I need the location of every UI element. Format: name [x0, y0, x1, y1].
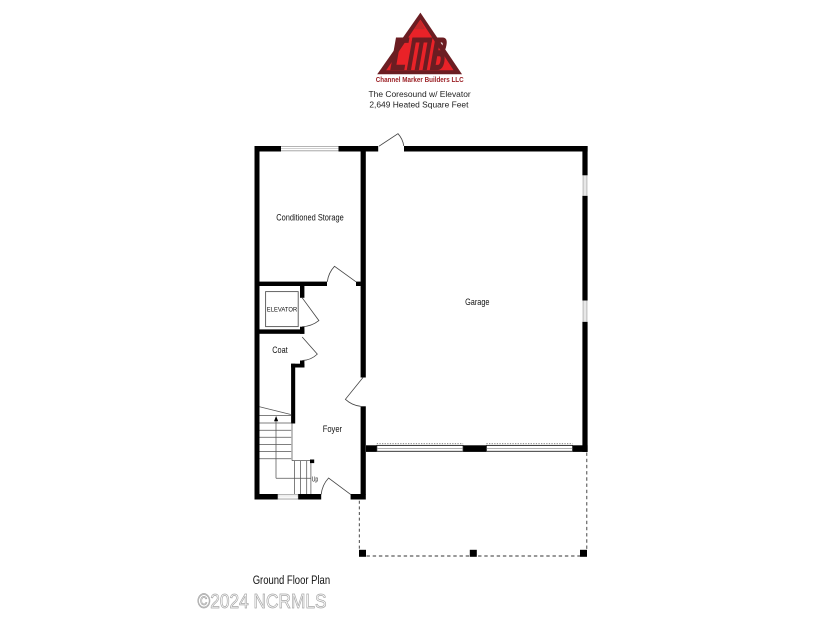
svg-text:Coat: Coat: [272, 345, 288, 355]
svg-text:Garage: Garage: [465, 297, 489, 308]
svg-text:Conditioned Storage: Conditioned Storage: [276, 213, 344, 223]
svg-text:©2024 NCRMLS: ©2024 NCRMLS: [198, 590, 327, 613]
svg-text:Channel Marker Builders LLC: Channel Marker Builders LLC: [376, 75, 464, 84]
svg-text:Ground Floor Plan: Ground Floor Plan: [253, 573, 330, 587]
svg-text:The Coresound w/ Elevator: The Coresound w/ Elevator: [369, 89, 471, 99]
svg-text:ELEVATOR: ELEVATOR: [267, 306, 297, 313]
svg-text:Foyer: Foyer: [323, 424, 342, 434]
svg-text:Up: Up: [312, 477, 319, 484]
svg-text:2,649 Heated Square Feet: 2,649 Heated Square Feet: [369, 99, 469, 109]
